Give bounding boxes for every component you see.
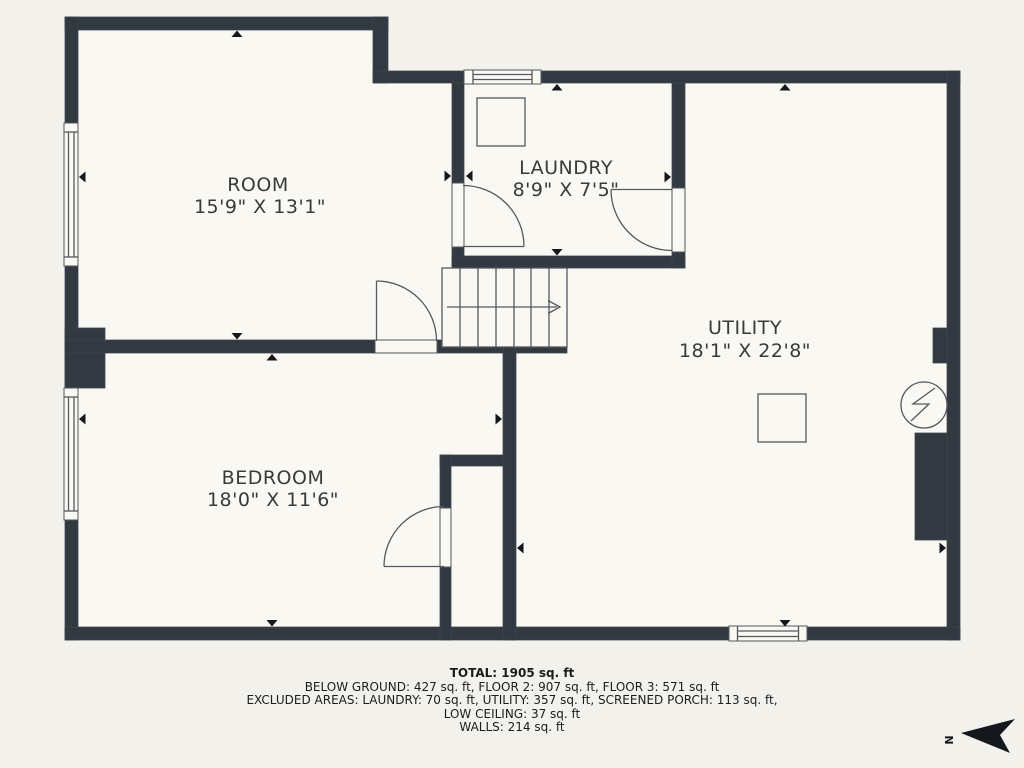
floor-plan-drawing: ROOM 15'9" X 13'1" LAUNDRY 8'9" X 7'5" U…: [0, 0, 1024, 768]
window-bottom: [729, 626, 807, 641]
staircase: [442, 268, 567, 347]
floor-plan-page: ROOM 15'9" X 13'1" LAUNDRY 8'9" X 7'5" U…: [0, 0, 1024, 768]
electrical-panel-icon: [901, 382, 947, 428]
compass-n-label: N: [943, 735, 956, 744]
summary-line-low-ceiling: LOW CEILING: 37 sq. ft: [0, 708, 1024, 722]
bedroom-dims: 18'0" X 11'6": [207, 489, 339, 511]
laundry-dims: 8'9" X 7'5": [513, 179, 620, 201]
window-top: [464, 70, 541, 84]
total-area-text: TOTAL: 1905 sq. ft: [0, 667, 1024, 681]
room-dims: 15'9" X 13'1": [194, 196, 326, 218]
chimney-block: [915, 433, 947, 540]
summary-line-walls: WALLS: 214 sq. ft: [0, 721, 1024, 735]
utility-fixture-icon: [758, 394, 806, 442]
laundry-appliance-icon: [477, 98, 525, 146]
summary-line-excluded: EXCLUDED AREAS: LAUNDRY: 70 sq. ft, UTIL…: [0, 694, 1024, 708]
window-left-upper: [64, 123, 78, 266]
area-summary: TOTAL: 1905 sq. ft BELOW GROUND: 427 sq.…: [0, 667, 1024, 735]
utility-label: UTILITY: [708, 317, 782, 339]
summary-line-floors: BELOW GROUND: 427 sq. ft, FLOOR 2: 907 s…: [0, 681, 1024, 695]
room-label: ROOM: [227, 174, 289, 196]
laundry-label: LAUNDRY: [519, 157, 613, 179]
bedroom-label: BEDROOM: [222, 467, 325, 489]
window-left-lower: [64, 388, 78, 520]
utility-dims: 18'1" X 22'8": [679, 340, 811, 362]
